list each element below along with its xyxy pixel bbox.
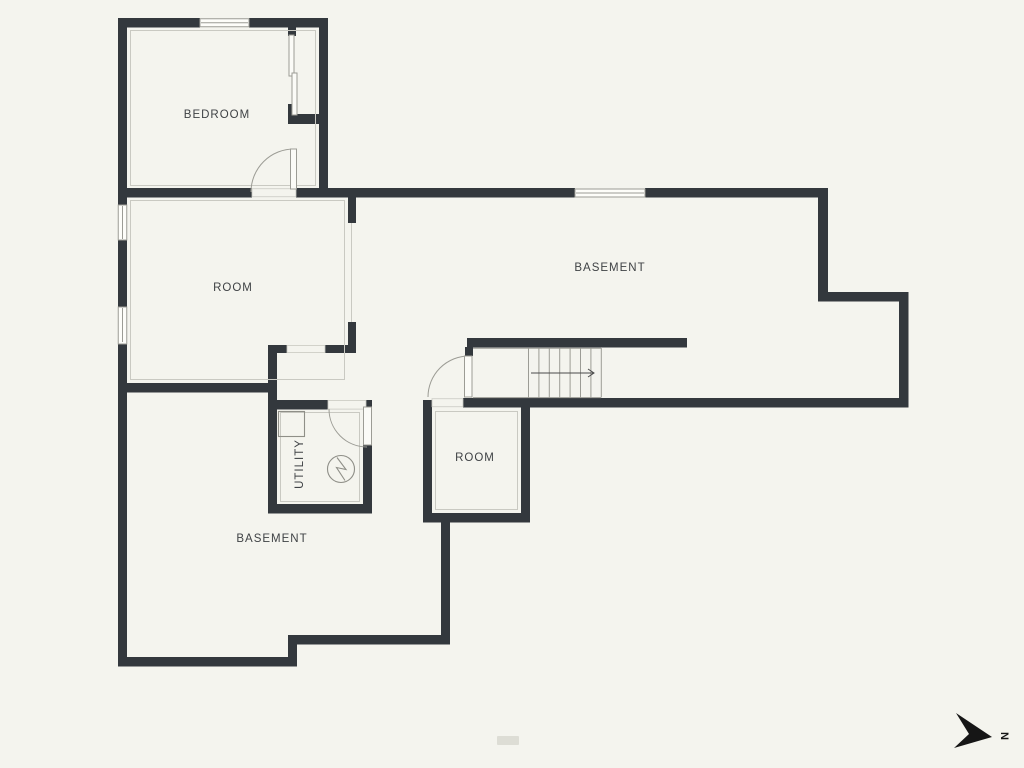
door-leaf bbox=[364, 407, 372, 445]
windows bbox=[118, 19, 645, 344]
utility-door-opening bbox=[328, 400, 366, 409]
watermark bbox=[497, 736, 519, 745]
wall bbox=[268, 400, 328, 410]
utility-fixtures bbox=[279, 412, 355, 483]
room-label-utility: UTILITY bbox=[294, 439, 306, 489]
window bbox=[575, 189, 645, 197]
room-label-room-lower: ROOM bbox=[455, 452, 495, 464]
wall bbox=[818, 292, 909, 302]
landing-doorway-opening bbox=[432, 399, 463, 407]
wall bbox=[521, 398, 530, 523]
wall bbox=[118, 383, 277, 393]
north-arrow-icon bbox=[954, 713, 992, 748]
sliding-panel bbox=[289, 35, 294, 76]
compass: N bbox=[954, 713, 1010, 748]
floor-plan-page: BEDROOM ROOM BASEMENT UTILITY ROOM BASEM… bbox=[0, 0, 1024, 768]
room-labels: BEDROOM ROOM BASEMENT UTILITY ROOM BASEM… bbox=[184, 109, 646, 545]
room-label-bedroom: BEDROOM bbox=[184, 109, 250, 121]
bedroom-door-opening bbox=[252, 189, 296, 197]
wall bbox=[441, 513, 450, 645]
bedroom-inner-outline bbox=[131, 31, 316, 186]
vestibule-opening bbox=[287, 345, 325, 352]
wall bbox=[118, 18, 127, 205]
wall bbox=[325, 345, 356, 353]
room-label-basement-lower: BASEMENT bbox=[236, 533, 307, 545]
utility-equipment-box bbox=[279, 412, 305, 437]
staircase bbox=[473, 348, 601, 398]
wall bbox=[423, 513, 530, 523]
room-label-room-left: ROOM bbox=[213, 282, 253, 294]
doors bbox=[251, 35, 472, 447]
wall-openings bbox=[252, 189, 463, 409]
north-label: N bbox=[998, 732, 1010, 740]
wall bbox=[288, 635, 450, 645]
wall bbox=[118, 188, 252, 198]
door-swing-arc bbox=[428, 356, 469, 397]
stairs-door bbox=[428, 356, 472, 397]
closet-sliding-door bbox=[289, 35, 297, 115]
wall bbox=[818, 188, 828, 302]
wall bbox=[118, 240, 127, 307]
wall bbox=[296, 188, 575, 198]
window bbox=[118, 205, 127, 240]
water-heater-icon bbox=[328, 456, 355, 483]
room-label-basement-upper: BASEMENT bbox=[574, 262, 645, 274]
wall bbox=[319, 18, 328, 198]
door-leaf bbox=[291, 149, 297, 189]
stair-direction-arrow bbox=[531, 369, 594, 377]
sliding-panel bbox=[292, 73, 297, 115]
floor-plan: BEDROOM ROOM BASEMENT UTILITY ROOM BASEM… bbox=[0, 0, 1024, 768]
wall bbox=[423, 400, 432, 517]
wall bbox=[645, 188, 826, 198]
wall bbox=[348, 197, 356, 223]
wall bbox=[268, 345, 277, 514]
window bbox=[200, 19, 249, 27]
wall bbox=[268, 504, 372, 514]
wall bbox=[249, 18, 328, 28]
wall bbox=[118, 657, 297, 667]
wall bbox=[467, 338, 687, 348]
window bbox=[118, 307, 127, 344]
door-swing-arc bbox=[329, 409, 367, 447]
wall bbox=[899, 292, 909, 408]
door-leaf bbox=[465, 356, 473, 397]
wall bbox=[118, 18, 200, 28]
wall bbox=[465, 347, 473, 356]
